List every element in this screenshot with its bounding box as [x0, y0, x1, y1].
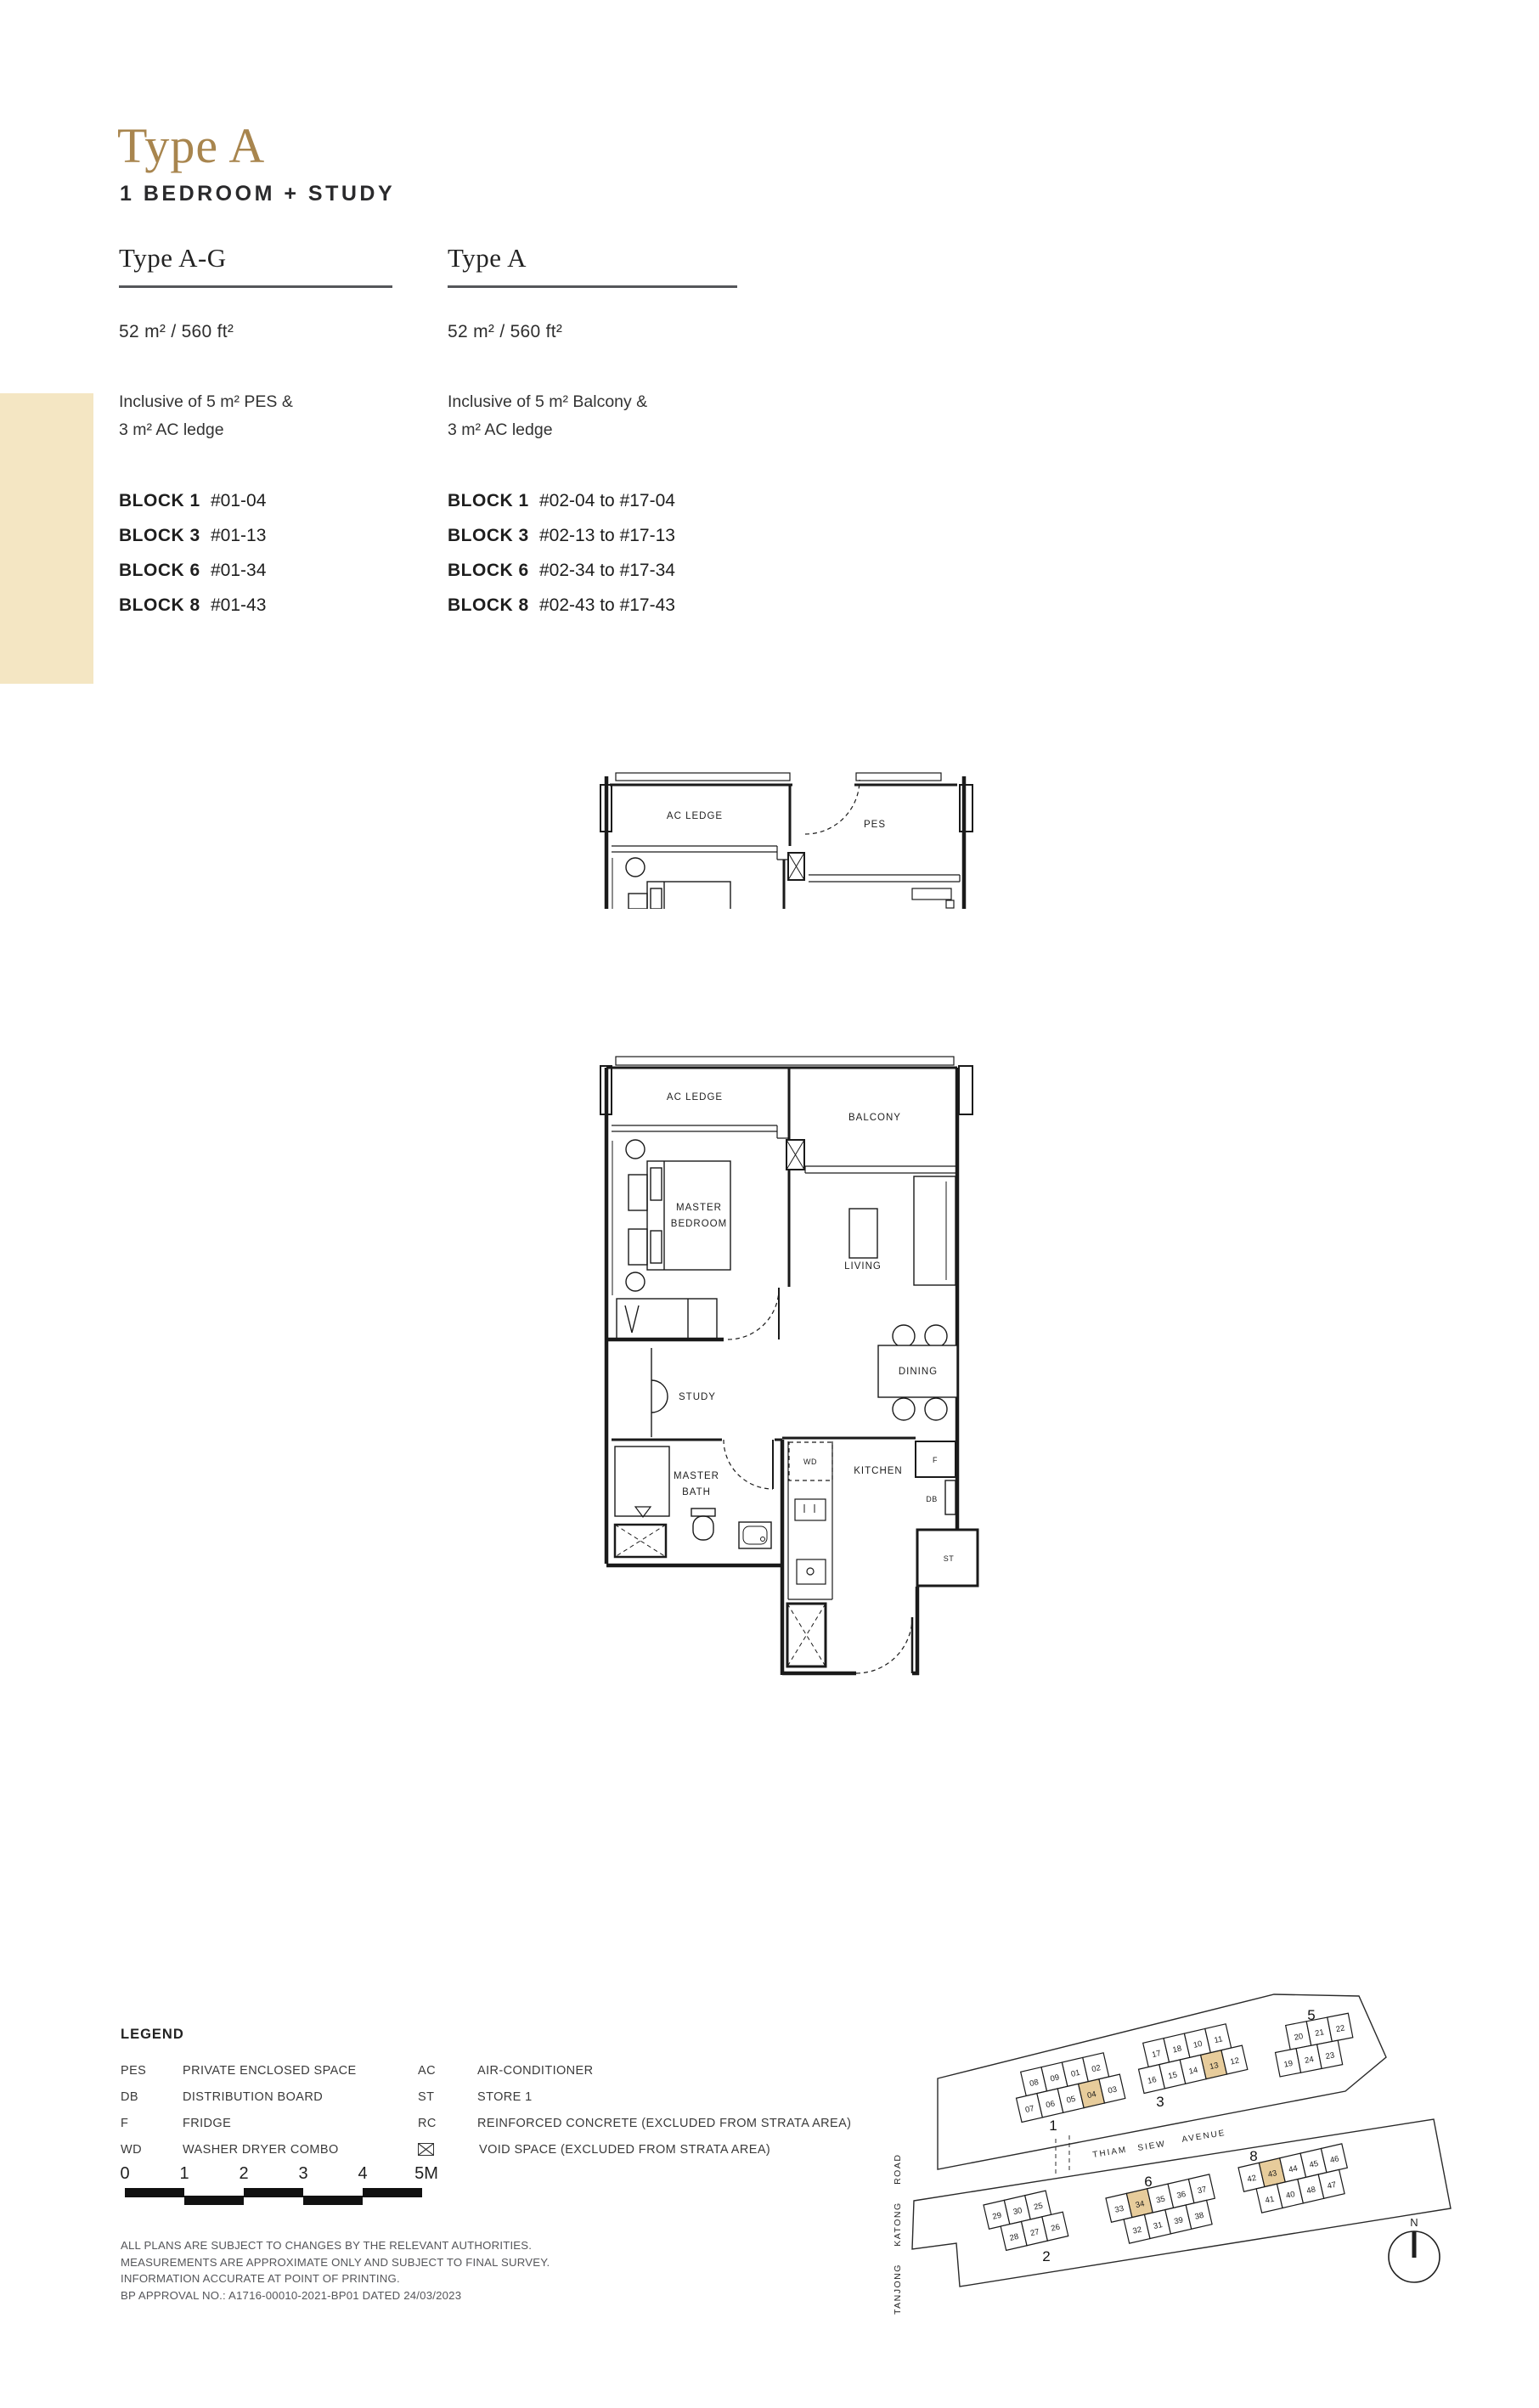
scale-tick: 1 — [179, 2164, 189, 2184]
variant-inclusive: Inclusive of 5 m² Balcony & 3 m² AC ledg… — [448, 388, 741, 444]
room-label-master-bath: BATH — [682, 1487, 711, 1497]
block-row: BLOCK 1 #02-04 to #17-04 — [448, 483, 741, 518]
road-label-avenue: AVENUE — [1181, 2129, 1226, 2145]
block-label: BLOCK 1 — [448, 483, 539, 518]
variant-type-a-g: Type A-G 52 m² / 560 ft² Inclusive of 5 … — [119, 243, 412, 623]
variant-area: 52 m² / 560 ft² — [119, 322, 412, 342]
variant-inclusive: Inclusive of 5 m² PES & 3 m² AC ledge — [119, 388, 412, 444]
note-line: BP APPROVAL NO.: A1716-00010-2021-BP01 D… — [121, 2287, 630, 2304]
inclusive-line: 3 m² AC ledge — [448, 416, 741, 444]
site-unit-number: 23 — [1325, 2050, 1335, 2061]
scale-tick: 4 — [358, 2164, 367, 2184]
legend-item: ST STORE 1 — [418, 2084, 533, 2111]
room-label-kitchen: KITCHEN — [854, 1466, 902, 1476]
scale-tick: 3 — [298, 2164, 307, 2184]
site-block-number-8: 8 — [1249, 2148, 1257, 2164]
block-units: #01-04 — [211, 483, 266, 518]
room-label-master-bath: MASTER — [674, 1471, 719, 1481]
site-block-number-5: 5 — [1307, 2007, 1315, 2023]
block-row: BLOCK 3 #02-13 to #17-13 — [448, 518, 741, 553]
site-block-cluster-6: 333435363732313938 — [1106, 2174, 1220, 2247]
fixture-label-db: DB — [926, 1495, 938, 1503]
room-label-store: ST — [944, 1554, 955, 1563]
floorplan-page: Type A 1 BEDROOM + STUDY Type A-G 52 m² … — [0, 0, 1539, 2408]
legend-item: F FRIDGE — [121, 2110, 231, 2137]
block-label: BLOCK 8 — [448, 588, 539, 623]
room-label-balcony: BALCONY — [848, 1113, 901, 1123]
room-label-living: LIVING — [844, 1261, 882, 1272]
fixture-label-fridge: F — [933, 1456, 938, 1464]
scale-segment — [363, 2188, 422, 2197]
legend-desc: PRIVATE ENCLOSED SPACE — [183, 2064, 357, 2078]
room-label-ac-ledge: AC LEDGE — [667, 811, 723, 821]
block-label: BLOCK 8 — [119, 588, 211, 623]
fixture-label-wd: WD — [803, 1458, 817, 1466]
block-label: BLOCK 1 — [119, 483, 211, 518]
side-accent-band — [0, 393, 93, 684]
site-block-number-6: 6 — [1144, 2174, 1152, 2190]
legend-desc: FRIDGE — [183, 2117, 231, 2130]
site-block-number-1: 1 — [1049, 2118, 1057, 2134]
block-units: #02-13 to #17-13 — [539, 518, 675, 553]
block-units: #02-04 to #17-04 — [539, 483, 675, 518]
legend-item: DB DISTRIBUTION BOARD — [121, 2084, 323, 2111]
site-unit-number: 22 — [1335, 2023, 1345, 2034]
legend-title: LEGEND — [121, 2027, 184, 2043]
legend-abbr: F — [121, 2117, 183, 2130]
note-line: ALL PLANS ARE SUBJECT TO CHANGES BY THE … — [121, 2237, 630, 2254]
scale-segment — [303, 2196, 363, 2205]
variant-name: Type A-G — [119, 243, 412, 274]
legend-item: AC AIR-CONDITIONER — [418, 2057, 594, 2084]
road-crossing-dashes — [1056, 2135, 1069, 2176]
block-row: BLOCK 6 #02-34 to #17-34 — [448, 553, 741, 588]
variant-type-a: Type A 52 m² / 560 ft² Inclusive of 5 m²… — [448, 243, 741, 623]
block-label: BLOCK 6 — [119, 553, 211, 588]
block-row: BLOCK 3 #01-13 — [119, 518, 412, 553]
legend-abbr: AC — [418, 2064, 477, 2078]
block-row: BLOCK 6 #01-34 — [119, 553, 412, 588]
scale-tick: 2 — [239, 2164, 248, 2184]
site-block-cluster-1: 080901020706050403 — [1011, 2050, 1125, 2123]
legend-item: VOID SPACE (EXCLUDED FROM STRATA AREA) — [418, 2136, 770, 2163]
block-row: BLOCK 8 #02-43 to #17-43 — [448, 588, 741, 623]
road-label-siew: SIEW — [1137, 2140, 1167, 2153]
room-label-dining: DINING — [899, 1367, 938, 1377]
scale-segment — [125, 2188, 184, 2197]
site-unit-number: 20 — [1294, 2032, 1304, 2043]
legend-item: WD WASHER DRYER COMBO — [121, 2136, 339, 2163]
main-floorplan-type-a: AC LEDGE BALCONY MASTER BEDROOM LIVING D… — [586, 1040, 1002, 1703]
legend-desc: WASHER DRYER COMBO — [183, 2143, 339, 2157]
block-label: BLOCK 6 — [448, 553, 539, 588]
site-unit-number: 24 — [1304, 2055, 1314, 2066]
block-label: BLOCK 3 — [448, 518, 539, 553]
legend-abbr: ST — [418, 2090, 477, 2104]
variant-rule — [119, 285, 392, 288]
road-label-thiam: THIAM — [1092, 2146, 1128, 2160]
road-label-tanjong-katong: TANJONG KATONG ROAD — [893, 2154, 903, 2315]
scale-bar: 0 1 2 3 4 5M — [110, 2164, 501, 2215]
variant-block-list: BLOCK 1 #02-04 to #17-04 BLOCK 3 #02-13 … — [448, 483, 741, 623]
block-units: #01-43 — [211, 588, 266, 623]
scale-segment — [244, 2188, 303, 2197]
partial-floorplan-type-a-g: AC LEDGE PES — [586, 764, 985, 909]
site-block-cluster-2: 293025282726 — [984, 2188, 1068, 2253]
legend-item: PES PRIVATE ENCLOSED SPACE — [121, 2057, 357, 2084]
north-compass-icon: N — [1389, 2216, 1440, 2282]
void-space-icon — [418, 2143, 434, 2156]
legend-desc: AIR-CONDITIONER — [477, 2064, 594, 2078]
site-blocks: 0809010207060504031718101116151413122021… — [984, 2013, 1357, 2253]
legend-abbr: PES — [121, 2064, 183, 2078]
site-block-cluster-3: 171810111615141312 — [1133, 2022, 1248, 2094]
scale-tick: 5M — [414, 2164, 438, 2184]
note-line: MEASUREMENTS ARE APPROXIMATE ONLY AND SU… — [121, 2254, 630, 2271]
site-unit-number: 19 — [1283, 2059, 1294, 2070]
inclusive-line: 3 m² AC ledge — [119, 416, 412, 444]
legend-desc: DISTRIBUTION BOARD — [183, 2090, 323, 2104]
legend-abbr: RC — [418, 2117, 477, 2130]
page-subtitle: 1 BEDROOM + STUDY — [120, 182, 395, 206]
room-label-pes: PES — [864, 820, 886, 830]
block-label: BLOCK 3 — [119, 518, 211, 553]
room-label-master-bedroom: BEDROOM — [671, 1219, 727, 1229]
scale-segment — [184, 2196, 244, 2205]
legend-desc: VOID SPACE (EXCLUDED FROM STRATA AREA) — [479, 2143, 770, 2157]
site-block-number-2: 2 — [1042, 2248, 1050, 2264]
block-units: #02-43 to #17-43 — [539, 588, 675, 623]
legend-desc: STORE 1 — [477, 2090, 533, 2104]
note-line: INFORMATION ACCURATE AT POINT OF PRINTIN… — [121, 2270, 630, 2287]
block-row: BLOCK 8 #01-43 — [119, 588, 412, 623]
legend-item: RC REINFORCED CONCRETE (EXCLUDED FROM ST… — [418, 2110, 851, 2137]
room-label-ac-ledge: AC LEDGE — [667, 1092, 723, 1102]
variant-rule — [448, 285, 737, 288]
block-units: #01-13 — [211, 518, 266, 553]
disclaimer-notes: ALL PLANS ARE SUBJECT TO CHANGES BY THE … — [121, 2237, 630, 2304]
variant-name: Type A — [448, 243, 741, 274]
scale-tick: 0 — [120, 2164, 129, 2184]
variant-area: 52 m² / 560 ft² — [448, 322, 741, 342]
legend-abbr: WD — [121, 2143, 183, 2157]
room-label-master-bedroom: MASTER — [676, 1203, 722, 1213]
site-plan: THIAM SIEW AVENUE TANJONG KATONG ROAD N … — [883, 1954, 1461, 2336]
site-block-number-3: 3 — [1156, 2094, 1164, 2110]
inclusive-line: Inclusive of 5 m² PES & — [119, 388, 412, 416]
site-unit-number: 21 — [1314, 2027, 1324, 2039]
block-units: #02-34 to #17-34 — [539, 553, 675, 588]
legend-abbr: DB — [121, 2090, 183, 2104]
variant-block-list: BLOCK 1 #01-04 BLOCK 3 #01-13 BLOCK 6 #0… — [119, 483, 412, 623]
legend-desc: REINFORCED CONCRETE (EXCLUDED FROM STRAT… — [477, 2117, 851, 2130]
page-title: Type A — [117, 117, 265, 174]
north-label: N — [1410, 2216, 1418, 2229]
block-row: BLOCK 1 #01-04 — [119, 483, 412, 518]
block-units: #01-34 — [211, 553, 266, 588]
inclusive-line: Inclusive of 5 m² Balcony & — [448, 388, 741, 416]
room-label-study: STUDY — [679, 1392, 716, 1402]
